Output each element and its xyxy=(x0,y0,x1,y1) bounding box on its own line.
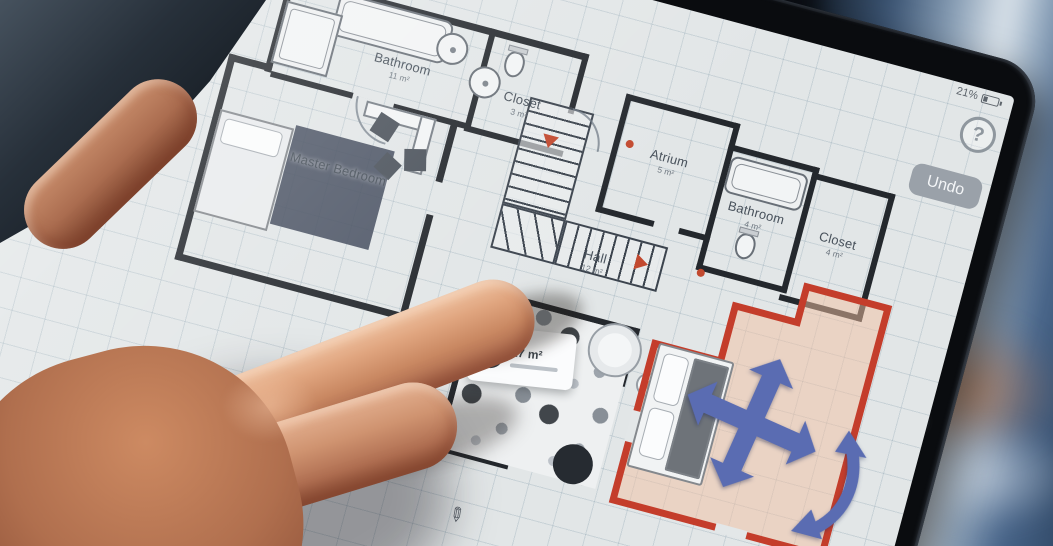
room-label-closet-right[interactable]: Closet 4 m² xyxy=(794,223,878,269)
wall-segment xyxy=(270,71,354,99)
wall-segment xyxy=(568,53,590,114)
scene: Bathroom 11 m² Closet 3 m² Master Bedroo… xyxy=(0,0,1053,546)
toilet xyxy=(501,49,527,79)
card-subtext-placeholder xyxy=(510,363,558,372)
floor-pattern-blob xyxy=(548,440,597,489)
wall-segment xyxy=(595,206,655,227)
room-label-closet-top[interactable]: Closet 3 m² xyxy=(474,81,568,129)
wall-segment xyxy=(174,252,406,320)
wall-segment xyxy=(595,94,632,213)
desk-chair xyxy=(404,149,426,171)
wall-segment xyxy=(435,119,458,183)
knuckle-highlight xyxy=(222,370,317,442)
wall-segment xyxy=(811,172,896,200)
wall-segment xyxy=(625,94,741,130)
room-label-atrium[interactable]: Atrium 5 m² xyxy=(626,141,710,187)
